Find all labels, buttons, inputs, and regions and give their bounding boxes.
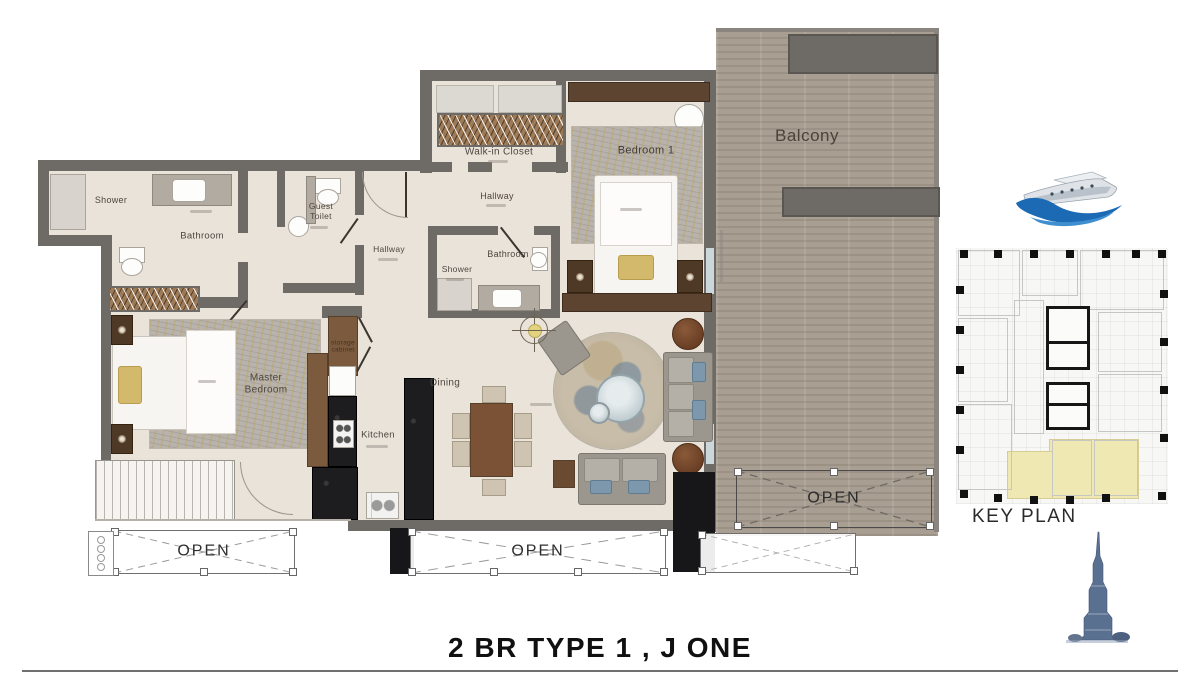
label-bedroom1: Bedroom 1	[618, 145, 675, 158]
closet-shelf-2	[498, 85, 562, 113]
kitchen-counter-bottom	[312, 467, 358, 520]
dim-master-bed	[198, 380, 216, 383]
dim-balcony-side	[720, 230, 723, 282]
label-shower2: Shower	[442, 265, 473, 275]
bedroom1-pillow	[618, 255, 654, 280]
label-kitchen: Kitchen	[361, 431, 395, 442]
key-plan-highlight-ext	[1008, 452, 1052, 498]
dim-hallway-lower	[378, 258, 398, 261]
compass-core	[528, 324, 542, 338]
kitchen-tall-unit	[307, 353, 328, 467]
shower2-tray	[437, 278, 472, 311]
label-balcony: Balcony	[775, 126, 839, 146]
wall-closet-left	[420, 70, 432, 173]
dim-guest-toilet	[310, 226, 328, 229]
compass-target-icon	[520, 316, 548, 344]
bathroom2-toilet-bowl	[530, 252, 547, 268]
label-walk-in-closet: Walk-in Closet	[465, 146, 533, 158]
open-left-attachment	[88, 531, 114, 576]
dim-kitchen	[366, 445, 388, 448]
burj-khalifa-tower-icon	[1054, 530, 1142, 646]
open-balcony-label: OPEN	[807, 490, 860, 508]
wall-top-left	[38, 160, 430, 171]
wall-bathblock-right-b	[355, 245, 364, 295]
wall-bathroom2-left	[428, 226, 437, 318]
bedroom1-nightstand-left	[567, 260, 593, 293]
wall-guest-toilet-left	[277, 171, 285, 227]
balcony-parapet	[934, 28, 939, 532]
label-bathroom1: Bathroom	[180, 232, 224, 243]
bathroom1-toilet-bowl	[121, 258, 143, 276]
floorplan-page: OPEN OPEN OPEN Shower Bathroom Gues	[0, 0, 1200, 691]
railing-frame-bottom-right	[700, 533, 856, 573]
sofa-bottom-pillow-2	[628, 480, 650, 494]
living-side-table-silver	[588, 402, 610, 424]
living-pouf-bottom	[672, 443, 704, 475]
kitchen-washer	[366, 492, 399, 519]
sofa-right-pillow-2	[692, 400, 706, 420]
dining-chair-1	[452, 413, 470, 439]
dining-table	[470, 403, 513, 477]
sofa-right-cushion-1	[668, 357, 694, 383]
terrace-deck-striped	[95, 460, 235, 520]
dining-chair-3	[514, 413, 532, 439]
master-nightstand-top	[111, 315, 133, 345]
open-area-middle: OPEN	[410, 530, 666, 574]
closet-door-gap-1	[452, 162, 468, 172]
dim-walkin	[488, 160, 508, 163]
label-shower1: Shower	[95, 195, 127, 205]
open-area-balcony: OPEN	[736, 470, 932, 528]
sofa-right-pillow-1	[692, 362, 706, 382]
sofa-bottom-pillow-1	[590, 480, 612, 494]
sofa-bottom-cushion-2	[622, 458, 658, 482]
kitchen-counter-right	[404, 378, 434, 520]
dim-bed1	[620, 208, 642, 211]
bedroom1-bed-throw	[600, 182, 672, 246]
dining-chair-2	[452, 441, 470, 467]
wall-guest-toilet-bottom	[283, 283, 363, 293]
sofa-right-cushion-3	[668, 411, 694, 437]
label-dining: Dining	[430, 377, 460, 389]
key-plan	[956, 248, 1168, 504]
dining-chair-5	[482, 386, 506, 403]
balcony-wall-block-mid	[782, 187, 940, 217]
key-plan-core-upper	[1046, 306, 1090, 370]
bathroom1-sink	[172, 179, 206, 202]
terrace-edge-line	[95, 519, 351, 521]
label-hallway-lower: Hallway	[373, 245, 405, 255]
shower-tray-1	[50, 174, 86, 230]
plan-title: 2 BR TYPE 1 , J ONE	[0, 632, 1200, 664]
open-middle-label: OPEN	[511, 543, 564, 561]
dim-bathroom1	[190, 210, 212, 213]
wall-bathroom2-right	[551, 226, 560, 318]
balcony-door-glass-1	[706, 248, 714, 294]
bedroom1-wardrobe-band	[562, 293, 712, 312]
bedroom1-nightstand-right	[677, 260, 703, 293]
wall-master-left	[101, 297, 111, 463]
key-plan-label: KEY PLAN	[972, 506, 1077, 528]
dining-chair-6	[482, 479, 506, 496]
key-plan-core-lower	[1046, 382, 1090, 430]
bathroom2-sink	[492, 289, 522, 308]
label-bathroom2: Bathroom	[487, 249, 528, 259]
closet-shelf-1	[436, 85, 494, 113]
wall-top-closet-bedroom	[420, 70, 716, 81]
open-left-label: OPEN	[177, 543, 230, 561]
dim-shower2	[446, 278, 464, 281]
master-nightstand-bottom	[111, 424, 133, 454]
label-guest-toilet: Guest Toilet	[304, 202, 338, 222]
wall-bath-divider-a	[238, 171, 248, 233]
balcony-deck	[716, 28, 938, 536]
balcony-wall-block-top	[788, 34, 938, 74]
bedroom1-tv-console	[568, 82, 710, 102]
master-pillow	[118, 366, 142, 404]
wall-bathroom2-top	[428, 226, 560, 235]
master-closet-wardrobe	[108, 286, 200, 312]
label-master-bedroom: Master Bedroom	[238, 373, 294, 396]
entry-door-leaf	[405, 172, 407, 217]
kitchen-cooktop	[333, 420, 354, 448]
label-storage-cabinet: storage cabinet	[328, 340, 358, 355]
wall-left-upper	[38, 160, 49, 246]
sofa-bottom-cushion-1	[584, 458, 620, 482]
railing-cross	[701, 534, 855, 572]
walk-in-closet-wardrobe	[437, 113, 565, 147]
living-pouf-top	[672, 318, 704, 350]
dim-hallway-upper	[486, 204, 506, 207]
living-side-table	[553, 460, 575, 488]
dining-chair-4	[514, 441, 532, 467]
bottom-rule	[22, 670, 1178, 672]
yacht-logo-icon	[1010, 165, 1130, 231]
kitchen-fridge	[329, 366, 356, 396]
sofa-right-cushion-2	[668, 384, 694, 410]
closet-door-gap-2	[492, 162, 532, 172]
key-plan-columns	[960, 250, 968, 258]
label-hallway-upper: Hallway	[480, 191, 514, 201]
dim-dining	[530, 403, 552, 406]
open-area-left: OPEN	[113, 530, 295, 574]
